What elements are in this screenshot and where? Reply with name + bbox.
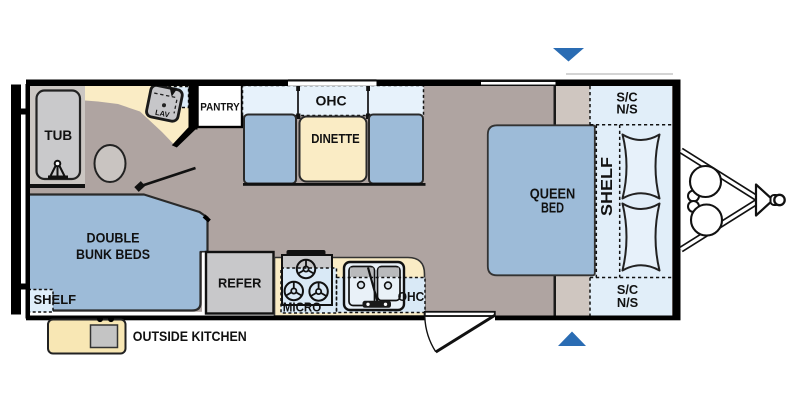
svg-text:BUNK BEDS: BUNK BEDS	[76, 246, 150, 262]
svg-text:SHELF: SHELF	[599, 157, 616, 216]
svg-text:DINETTE: DINETTE	[311, 132, 360, 146]
svg-text:SHELF: SHELF	[34, 292, 77, 307]
svg-text:N/S: N/S	[617, 295, 639, 310]
svg-text:TUB: TUB	[44, 128, 72, 143]
svg-text:OUTSIDE KITCHEN: OUTSIDE KITCHEN	[133, 329, 247, 344]
svg-text:MICRO: MICRO	[283, 301, 322, 315]
svg-text:OHC: OHC	[398, 289, 425, 304]
svg-text:OHC: OHC	[315, 93, 346, 109]
svg-text:N/S: N/S	[616, 102, 638, 117]
svg-text:BED: BED	[541, 201, 564, 217]
svg-text:DOUBLE: DOUBLE	[87, 230, 140, 246]
svg-text:REFER: REFER	[218, 276, 261, 291]
svg-text:PANTRY: PANTRY	[200, 101, 240, 113]
